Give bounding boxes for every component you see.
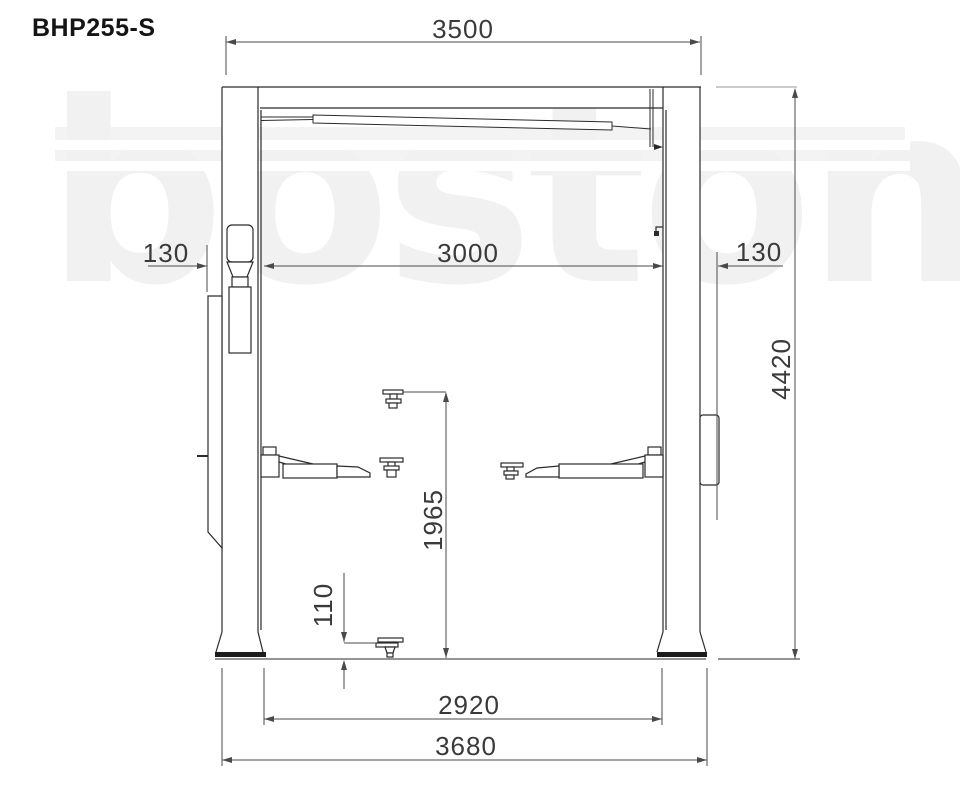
crossbeam-body	[222, 87, 701, 108]
dim-label-base-inner-span: 2920	[409, 692, 529, 718]
post-right-body	[663, 87, 700, 653]
lift-technical-drawing: boston	[0, 0, 960, 805]
lift-pad-right	[501, 463, 523, 479]
pad-raised-marker	[383, 390, 403, 408]
pad-lowered-marker	[376, 638, 403, 657]
dim-label-pad-min-height: 110	[310, 545, 336, 665]
lift-pad-left	[380, 458, 403, 477]
dim-label-right-offset: 130	[719, 239, 799, 265]
carriage-arm-left	[261, 447, 403, 478]
dim-label-overall-width: 3500	[403, 16, 523, 42]
post-left-body	[222, 87, 258, 653]
dim-label-overall-height: 4420	[768, 309, 794, 429]
baseplates	[215, 652, 707, 657]
motor-unit	[227, 225, 253, 353]
lift-diagram-svg	[0, 0, 960, 805]
dim-label-lift-height: 1965	[420, 460, 446, 580]
carriage-arm-right	[501, 447, 663, 479]
page-title: BHP255-S	[32, 14, 156, 42]
right-junction-box	[700, 415, 719, 485]
dimension-pad-min-height	[341, 573, 376, 689]
dim-label-left-offset: 130	[126, 240, 206, 266]
dim-label-base-overall-span: 3680	[406, 733, 526, 759]
left-cover-panel	[197, 296, 222, 548]
dim-label-clear-width: 3000	[408, 240, 528, 266]
